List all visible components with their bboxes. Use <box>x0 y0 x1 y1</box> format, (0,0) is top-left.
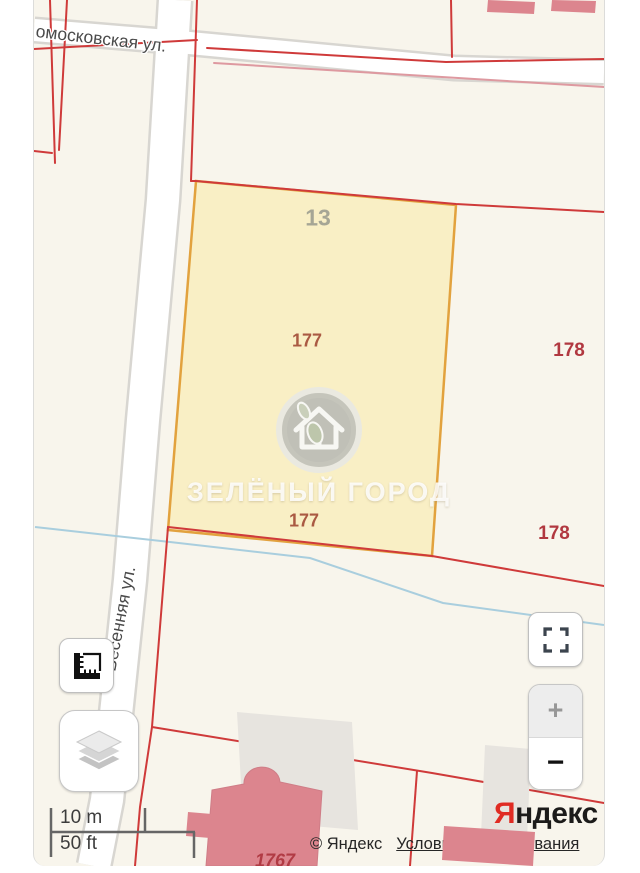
zoom-control: + − <box>528 684 583 790</box>
scale-bar: 10 m 50 ft <box>45 800 210 866</box>
ruler-icon <box>71 650 103 682</box>
adjacent-plot-number-label: 178 <box>538 523 570 545</box>
block-number-label: 13 <box>305 205 331 232</box>
scale-metric-label: 10 m <box>60 807 102 829</box>
adjacent-plot-number-label: 178 <box>553 340 585 362</box>
plus-icon: + <box>548 695 564 726</box>
zoom-out-button[interactable]: − <box>529 738 582 790</box>
yandex-logo-letter: Я <box>494 797 515 830</box>
watermark-company-name: ЗЕЛЁНЫЙ ГОРОД <box>187 477 451 508</box>
yandex-map-screenshot: { "streets": { "top": "омосковская ул.",… <box>0 0 640 873</box>
measure-distance-button[interactable] <box>59 638 114 693</box>
building-number-label: 1767 <box>255 851 295 867</box>
zoom-in-button[interactable]: + <box>529 685 582 738</box>
plot-number-label: 177 <box>289 511 319 532</box>
yandex-logo-rest: ндекс <box>515 797 598 830</box>
layers-icon <box>74 729 124 773</box>
copyright-text: © Яндекс <box>310 835 382 853</box>
fullscreen-button[interactable] <box>528 612 583 667</box>
house-leaf-icon <box>273 384 365 476</box>
building-footprints-top <box>487 0 596 14</box>
scale-imperial-label: 50 ft <box>60 833 97 855</box>
map-attribution: © ЯндексУсловия использования <box>310 835 579 854</box>
terms-of-use-link[interactable]: Условия использования <box>396 835 579 853</box>
layers-button[interactable] <box>59 710 139 792</box>
plot-number-label: 177 <box>292 331 322 352</box>
yandex-logo[interactable]: Яндекс <box>494 797 598 831</box>
fullscreen-icon <box>541 625 571 655</box>
